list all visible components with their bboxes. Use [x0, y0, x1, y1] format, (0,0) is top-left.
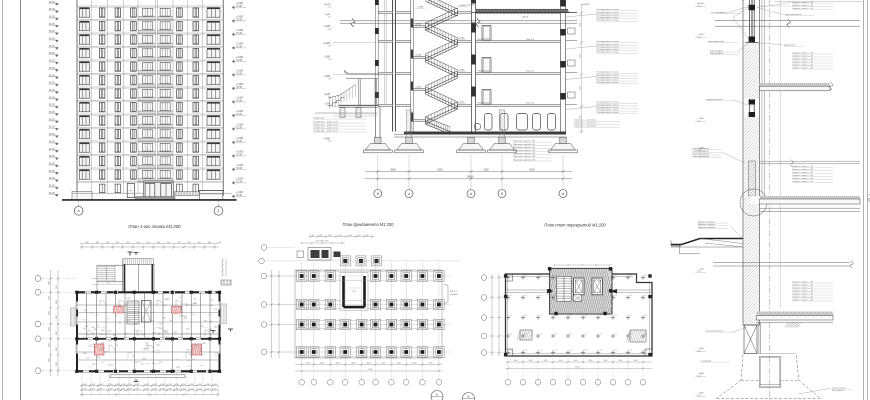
- svg-text:П-1: П-1: [615, 275, 618, 277]
- svg-text:Т2.98: Т2.98: [236, 195, 243, 197]
- svg-text:6300: 6300: [529, 168, 535, 171]
- svg-text:ФМ 8-1: ФМ 8-1: [450, 290, 458, 293]
- svg-text:+3.000: +3.000: [236, 17, 244, 19]
- svg-text:1500: 1500: [176, 367, 180, 369]
- svg-text:П-1: П-1: [510, 275, 513, 277]
- svg-text:П-1: П-1: [585, 350, 588, 352]
- svg-text:в: в: [78, 209, 80, 213]
- svg-text:620: 620: [159, 341, 162, 343]
- svg-text:1200: 1200: [109, 384, 113, 386]
- svg-text:+3.000: +3.000: [236, 98, 244, 100]
- svg-text:3000: 3000: [320, 363, 324, 365]
- svg-text:900: 900: [169, 388, 172, 390]
- svg-text:2100: 2100: [134, 323, 138, 325]
- svg-text:П-1: П-1: [615, 334, 618, 336]
- svg-text:-4.480: -4.480: [323, 138, 330, 141]
- svg-text:+4.480: +4.480: [323, 42, 331, 45]
- svg-text:900: 900: [210, 305, 213, 307]
- svg-text:1200: 1200: [107, 331, 111, 333]
- svg-text:2.78: 2.78: [106, 283, 110, 285]
- svg-text:П-1: П-1: [630, 295, 633, 297]
- svg-text:1500: 1500: [92, 364, 96, 366]
- svg-text:19600: 19600: [467, 176, 474, 179]
- svg-text:2400: 2400: [156, 345, 160, 347]
- svg-text:Т0.45: Т0.45: [477, 102, 483, 105]
- svg-text:3000: 3000: [412, 363, 416, 365]
- svg-text:1200: 1200: [161, 384, 165, 386]
- svg-text:12.8: 12.8: [86, 358, 89, 360]
- svg-text:а: а: [562, 192, 564, 196]
- svg-text:Т2.98: Т2.98: [236, 33, 243, 35]
- svg-text:36.00: 36.00: [49, 2, 55, 4]
- svg-text:300: 300: [96, 242, 99, 244]
- svg-text:36.00: 36.00: [49, 9, 55, 11]
- svg-text:в: в: [470, 192, 472, 196]
- svg-text:12.8: 12.8: [137, 334, 140, 336]
- svg-text:А: А: [436, 393, 438, 397]
- svg-text:П-1: П-1: [555, 315, 558, 317]
- svg-text:+3.000: +3.000: [236, 44, 244, 46]
- svg-text:1200: 1200: [199, 352, 203, 354]
- svg-text:3000: 3000: [574, 360, 578, 362]
- svg-text:2400: 2400: [85, 326, 89, 328]
- svg-text:36.00: 36.00: [49, 171, 55, 173]
- svg-text:300: 300: [106, 242, 109, 244]
- svg-text:36.00: 36.00: [49, 46, 55, 48]
- svg-text:П-1: П-1: [555, 350, 558, 352]
- svg-text:36.00: 36.00: [49, 105, 55, 107]
- svg-text:300: 300: [85, 242, 88, 244]
- svg-text:620: 620: [152, 352, 155, 354]
- svg-text:1200: 1200: [99, 384, 103, 386]
- svg-text:+3.000: +3.000: [236, 125, 244, 127]
- svg-text:Отмостка — асф.бетон: Отмостка — асф.бетон: [574, 119, 596, 122]
- svg-text:620: 620: [157, 334, 160, 336]
- svg-text:300: 300: [366, 235, 369, 237]
- svg-text:б: б: [501, 192, 504, 196]
- svg-text:Отмостка — асф.бетон: Отмостка — асф.бетон: [574, 125, 596, 128]
- svg-text:1500: 1500: [56, 331, 58, 335]
- svg-text:300: 300: [126, 242, 129, 244]
- svg-text:3000: 3000: [351, 363, 355, 365]
- svg-text:2100: 2100: [186, 329, 190, 331]
- svg-text:1200: 1200: [83, 384, 87, 386]
- svg-text:1500: 1500: [202, 343, 206, 345]
- svg-text:3000: 3000: [49, 358, 51, 362]
- svg-text:300: 300: [198, 242, 201, 244]
- svg-text:900: 900: [207, 388, 210, 390]
- svg-text:3000: 3000: [544, 360, 548, 362]
- svg-text:3000: 3000: [336, 363, 340, 365]
- svg-text:1200: 1200: [152, 333, 156, 335]
- svg-text:3000: 3000: [367, 363, 371, 365]
- svg-text:Пол 2-1: Пол 2-1: [526, 71, 535, 73]
- svg-text:-4.180: -4.180: [323, 93, 330, 96]
- svg-text:Т2.98: Т2.98: [236, 141, 243, 143]
- svg-text:Т2.98: Т2.98: [236, 74, 243, 76]
- svg-text:1500: 1500: [56, 285, 58, 289]
- svg-text:900: 900: [84, 388, 87, 390]
- svg-text:2100: 2100: [210, 339, 214, 341]
- svg-text:Т2.98: Т2.98: [236, 182, 243, 184]
- svg-text:3000: 3000: [429, 363, 433, 365]
- svg-text:1200: 1200: [135, 384, 139, 386]
- svg-text:+41.280: +41.280: [581, 3, 590, 6]
- svg-text:Т2.98: Т2.98: [236, 155, 243, 157]
- svg-text:620: 620: [90, 334, 93, 336]
- svg-text:900: 900: [186, 305, 189, 307]
- svg-text:1200: 1200: [174, 332, 178, 334]
- svg-text:300: 300: [177, 242, 180, 244]
- svg-text:Т2.98: Т2.98: [236, 168, 243, 170]
- svg-text:-4.80: -4.80: [699, 392, 705, 395]
- svg-text:620: 620: [94, 329, 97, 331]
- svg-text:П-1: П-1: [585, 334, 588, 336]
- svg-text:Т2.98: Т2.98: [236, 101, 243, 103]
- svg-text:-3.48: -3.48: [699, 347, 705, 350]
- svg-text:3800: 3800: [390, 168, 396, 171]
- svg-text:1500: 1500: [142, 359, 146, 361]
- svg-text:Т2.98: Т2.98: [236, 60, 243, 62]
- svg-text:3000: 3000: [529, 360, 533, 362]
- svg-text:3000: 3000: [49, 281, 51, 285]
- svg-text:1200: 1200: [198, 384, 202, 386]
- svg-text:1500: 1500: [56, 315, 58, 319]
- svg-text:36.00: 36.00: [49, 186, 55, 188]
- svg-text:600: 600: [320, 235, 323, 237]
- svg-text:П-1: П-1: [510, 350, 513, 352]
- svg-text:3000: 3000: [397, 363, 401, 365]
- svg-text:3000: 3000: [634, 360, 638, 362]
- svg-text:1: 1: [218, 209, 220, 213]
- svg-text:+41.280: +41.280: [466, 4, 475, 7]
- svg-text:Т9.45: Т9.45: [477, 70, 483, 73]
- svg-text:П-1: П-1: [615, 315, 618, 317]
- svg-text:36.00: 36.00: [49, 97, 55, 99]
- svg-text:+3.000: +3.000: [236, 30, 244, 32]
- svg-text:Т2.98: Т2.98: [236, 47, 243, 49]
- svg-text:36.00: 36.00: [49, 193, 55, 195]
- svg-text:-0.45: -0.45: [699, 117, 705, 120]
- svg-text:П-1: П-1: [555, 295, 558, 297]
- svg-text:900: 900: [123, 388, 126, 390]
- svg-text:П-1: П-1: [585, 315, 588, 317]
- svg-text:3.64: 3.64: [163, 331, 166, 333]
- svg-text:3.64: 3.64: [159, 361, 162, 363]
- svg-text:620: 620: [141, 363, 144, 365]
- svg-text:620: 620: [115, 345, 118, 347]
- svg-text:3.64: 3.64: [159, 323, 162, 325]
- svg-text:900: 900: [199, 388, 202, 390]
- svg-text:2100: 2100: [88, 346, 92, 348]
- svg-text:П-1: П-1: [510, 315, 513, 317]
- svg-text:П-1: П-1: [510, 295, 513, 297]
- svg-text:П-1: П-1: [630, 350, 633, 352]
- svg-text:12.8: 12.8: [200, 355, 203, 357]
- svg-text:6300: 6300: [437, 168, 443, 171]
- svg-text:3.64: 3.64: [210, 321, 213, 323]
- svg-text:1200: 1200: [124, 305, 128, 307]
- svg-text:2100: 2100: [338, 235, 342, 237]
- svg-text:620: 620: [175, 313, 178, 315]
- svg-text:3000: 3000: [580, 23, 582, 27]
- svg-text:36.00: 36.00: [49, 178, 55, 180]
- svg-text:Б: Б: [468, 395, 470, 399]
- svg-text:+3.000: +3.000: [236, 3, 244, 5]
- svg-text:3000: 3000: [49, 327, 51, 331]
- svg-text:3000: 3000: [580, 115, 582, 119]
- svg-text:1200: 1200: [122, 384, 126, 386]
- svg-text:2400: 2400: [104, 352, 108, 354]
- svg-text:2400: 2400: [145, 342, 149, 344]
- svg-text:36.00: 36.00: [49, 112, 55, 114]
- svg-text:План фундамента М1:200: План фундамента М1:200: [343, 222, 395, 227]
- svg-text:П-1: П-1: [540, 295, 543, 297]
- svg-text:3100: 3100: [483, 168, 489, 171]
- svg-text:300: 300: [312, 235, 315, 237]
- svg-text:600: 600: [358, 235, 361, 237]
- svg-text:2400: 2400: [159, 328, 163, 330]
- svg-text:36.00: 36.00: [49, 83, 55, 85]
- svg-text:1200: 1200: [153, 384, 157, 386]
- svg-text:3000: 3000: [604, 360, 608, 362]
- svg-text:1200: 1200: [182, 384, 186, 386]
- svg-text:Т12.45: Т12.45: [477, 38, 485, 41]
- svg-text:36.00: 36.00: [49, 142, 55, 144]
- svg-text:П-1: П-1: [600, 315, 603, 317]
- svg-text:2400: 2400: [183, 316, 187, 318]
- svg-text:Т2.98: Т2.98: [236, 128, 243, 130]
- svg-text:П-1: П-1: [600, 350, 603, 352]
- svg-text:36.00: 36.00: [49, 61, 55, 63]
- svg-text:620: 620: [96, 325, 99, 327]
- svg-text:27000: 27000: [368, 369, 373, 371]
- svg-text:3000: 3000: [306, 363, 310, 365]
- svg-text:песч. щебень: песч. щебень: [832, 390, 844, 392]
- svg-text:П-1: П-1: [645, 295, 648, 297]
- svg-text:+3.000: +3.000: [236, 152, 244, 154]
- svg-text:+41.28: +41.28: [323, 3, 331, 6]
- svg-text:1200: 1200: [190, 384, 194, 386]
- svg-text:36.00: 36.00: [49, 119, 55, 121]
- svg-text:900: 900: [83, 328, 86, 330]
- svg-text:400x400: 400x400: [450, 294, 459, 296]
- svg-text:П-1: П-1: [555, 334, 558, 336]
- svg-text:П-1: П-1: [570, 315, 573, 317]
- svg-text:36.00: 36.00: [49, 31, 55, 33]
- svg-text:+3.000: +3.000: [236, 71, 244, 73]
- svg-text:3000: 3000: [580, 54, 582, 58]
- svg-text:П-1: П-1: [645, 275, 648, 277]
- svg-text:2100: 2100: [186, 350, 190, 352]
- svg-text:1200: 1200: [145, 384, 149, 386]
- svg-text:900: 900: [169, 320, 172, 322]
- svg-text:620: 620: [211, 300, 214, 302]
- svg-text:П-1: П-1: [615, 350, 618, 352]
- svg-text:300: 300: [187, 242, 190, 244]
- svg-text:П-1: П-1: [645, 315, 648, 317]
- svg-text:П-1: П-1: [555, 275, 558, 277]
- svg-text:1200: 1200: [352, 291, 356, 293]
- svg-text:1200: 1200: [93, 347, 97, 349]
- svg-text:Отмостка — асф.бетон: Отмостка — асф.бетон: [574, 122, 596, 125]
- svg-text:300: 300: [208, 242, 211, 244]
- svg-text:П-1: П-1: [525, 295, 528, 297]
- svg-text:2400: 2400: [166, 299, 170, 301]
- svg-text:П-1: П-1: [525, 275, 528, 277]
- svg-text:1200: 1200: [328, 235, 332, 237]
- svg-text:620: 620: [194, 299, 197, 301]
- svg-text:1200: 1200: [206, 384, 210, 386]
- svg-text:+41.28: +41.28: [697, 2, 705, 5]
- svg-text:П-1: П-1: [570, 350, 573, 352]
- svg-text:+3.000: +3.000: [236, 138, 244, 140]
- svg-text:-4.48: -4.48: [699, 372, 705, 375]
- svg-text:620: 620: [118, 305, 121, 307]
- svg-text:36.00: 36.00: [49, 90, 55, 92]
- svg-text:3.64: 3.64: [190, 355, 193, 357]
- svg-text:1200: 1200: [108, 340, 112, 342]
- svg-text:3000: 3000: [589, 360, 593, 362]
- svg-text:3000: 3000: [49, 296, 51, 300]
- svg-text:36.00: 36.00: [49, 127, 55, 129]
- svg-text:План 1-ого этажа М1:200: План 1-ого этажа М1:200: [128, 224, 181, 229]
- svg-text:36.00: 36.00: [49, 149, 55, 151]
- svg-text:900: 900: [183, 388, 186, 390]
- svg-text:900: 900: [163, 318, 166, 320]
- svg-text:+3.000: +3.000: [236, 165, 244, 167]
- svg-text:П-1: П-1: [525, 350, 528, 352]
- svg-text:2100: 2100: [97, 357, 101, 359]
- svg-text:-4.48: -4.48: [325, 13, 331, 16]
- svg-text:3.64: 3.64: [164, 299, 167, 301]
- svg-text:36.00: 36.00: [49, 39, 55, 41]
- svg-text:12.8: 12.8: [164, 305, 167, 307]
- svg-text:36.00: 36.00: [49, 164, 55, 166]
- svg-text:300: 300: [147, 242, 150, 244]
- svg-text:12.8: 12.8: [146, 338, 149, 340]
- svg-text:1200: 1200: [101, 343, 105, 345]
- svg-text:3000: 3000: [49, 311, 51, 315]
- svg-text:3000: 3000: [49, 343, 51, 347]
- svg-text:+3.000: +3.000: [236, 57, 244, 59]
- svg-text:+39.75: +39.75: [522, 17, 530, 19]
- svg-text:2100: 2100: [126, 320, 130, 322]
- svg-text:900: 900: [191, 388, 194, 390]
- svg-text:Пол 1-1: Пол 1-1: [526, 103, 535, 105]
- svg-text:г: г: [408, 192, 410, 196]
- svg-text:36.00: 36.00: [49, 24, 55, 26]
- svg-text:+4.800: +4.800: [415, 23, 422, 26]
- svg-text:Т2.98: Т2.98: [236, 87, 243, 89]
- svg-text:1200: 1200: [126, 298, 130, 300]
- svg-text:1500: 1500: [184, 318, 188, 320]
- svg-text:2100: 2100: [84, 338, 88, 340]
- svg-text:3000: 3000: [559, 360, 563, 362]
- svg-text:1500: 1500: [56, 300, 58, 304]
- svg-text:+3.000: +3.000: [236, 179, 244, 181]
- svg-text:Т2.98: Т2.98: [236, 6, 243, 8]
- svg-text:2400: 2400: [83, 353, 87, 355]
- svg-text:1200: 1200: [145, 345, 149, 347]
- svg-text:3.64: 3.64: [214, 308, 217, 310]
- svg-text:300: 300: [116, 242, 119, 244]
- svg-text:1500: 1500: [56, 362, 58, 366]
- svg-text:36.00: 36.00: [49, 75, 55, 77]
- svg-text:3.64: 3.64: [167, 339, 170, 341]
- svg-text:36.00: 36.00: [49, 156, 55, 158]
- svg-text:36.00: 36.00: [49, 134, 55, 136]
- svg-text:900: 900: [92, 388, 95, 390]
- svg-text:300: 300: [157, 242, 160, 244]
- svg-text:П-1: П-1: [540, 334, 543, 336]
- svg-text:300: 300: [218, 242, 221, 244]
- svg-text:36.00: 36.00: [49, 17, 55, 19]
- svg-text:27000: 27000: [575, 367, 580, 369]
- svg-text:3000: 3000: [514, 360, 518, 362]
- svg-text:П-1: П-1: [600, 334, 603, 336]
- svg-text:3000: 3000: [619, 360, 623, 362]
- svg-text:900: 900: [193, 359, 196, 361]
- svg-text:Т2.98: Т2.98: [236, 20, 243, 22]
- svg-text:1200: 1200: [213, 384, 217, 386]
- svg-text:П-1: П-1: [615, 295, 618, 297]
- svg-text:1200: 1200: [91, 384, 95, 386]
- svg-text:1200: 1200: [168, 384, 172, 386]
- svg-text:П-1: П-1: [630, 275, 633, 277]
- svg-text:300: 300: [167, 242, 170, 244]
- svg-text:-1.980: -1.980: [323, 76, 330, 78]
- svg-text:620: 620: [201, 326, 204, 328]
- svg-text:3.64: 3.64: [204, 320, 207, 322]
- svg-text:1200: 1200: [144, 348, 148, 350]
- svg-text:1200: 1200: [101, 330, 105, 332]
- svg-text:П-1: П-1: [525, 315, 528, 317]
- svg-text:д: д: [377, 192, 379, 196]
- svg-text:+3.000: +3.000: [236, 192, 244, 194]
- svg-text:620: 620: [119, 323, 122, 325]
- svg-text:2400: 2400: [214, 327, 218, 329]
- svg-text:12.8: 12.8: [100, 350, 103, 352]
- svg-text:1500: 1500: [194, 303, 198, 305]
- svg-text:900: 900: [110, 388, 113, 390]
- svg-text:1200: 1200: [100, 334, 104, 336]
- svg-text:П-1: П-1: [645, 350, 648, 352]
- svg-text:2100: 2100: [190, 305, 194, 307]
- svg-text:900: 900: [162, 388, 165, 390]
- svg-text:-2.00: -2.00: [698, 269, 704, 271]
- svg-text:900: 900: [179, 307, 182, 309]
- svg-text:Т2.98: Т2.98: [236, 114, 243, 116]
- svg-text:1500: 1500: [152, 363, 156, 365]
- svg-text:П-1: П-1: [540, 275, 543, 277]
- svg-text:П-1: П-1: [630, 315, 633, 317]
- svg-text:+3.000: +3.000: [236, 84, 244, 86]
- svg-text:П-1: П-1: [540, 315, 543, 317]
- svg-text:1200: 1200: [116, 384, 120, 386]
- svg-text:3000: 3000: [580, 86, 582, 90]
- svg-text:+3.000: +3.000: [236, 111, 244, 113]
- svg-text:36.00: 36.00: [49, 68, 55, 70]
- svg-text:1200 2400 1200: 1200 2400 1200: [316, 241, 329, 243]
- svg-text:1500: 1500: [56, 347, 58, 351]
- svg-text:-1.980: -1.980: [323, 57, 330, 59]
- svg-text:1200: 1200: [166, 337, 170, 339]
- svg-text:П-1: П-1: [510, 334, 513, 336]
- svg-text:1200: 1200: [113, 335, 117, 337]
- svg-text:Пол 3-1: Пол 3-1: [526, 39, 535, 41]
- svg-text:900: 900: [214, 388, 217, 390]
